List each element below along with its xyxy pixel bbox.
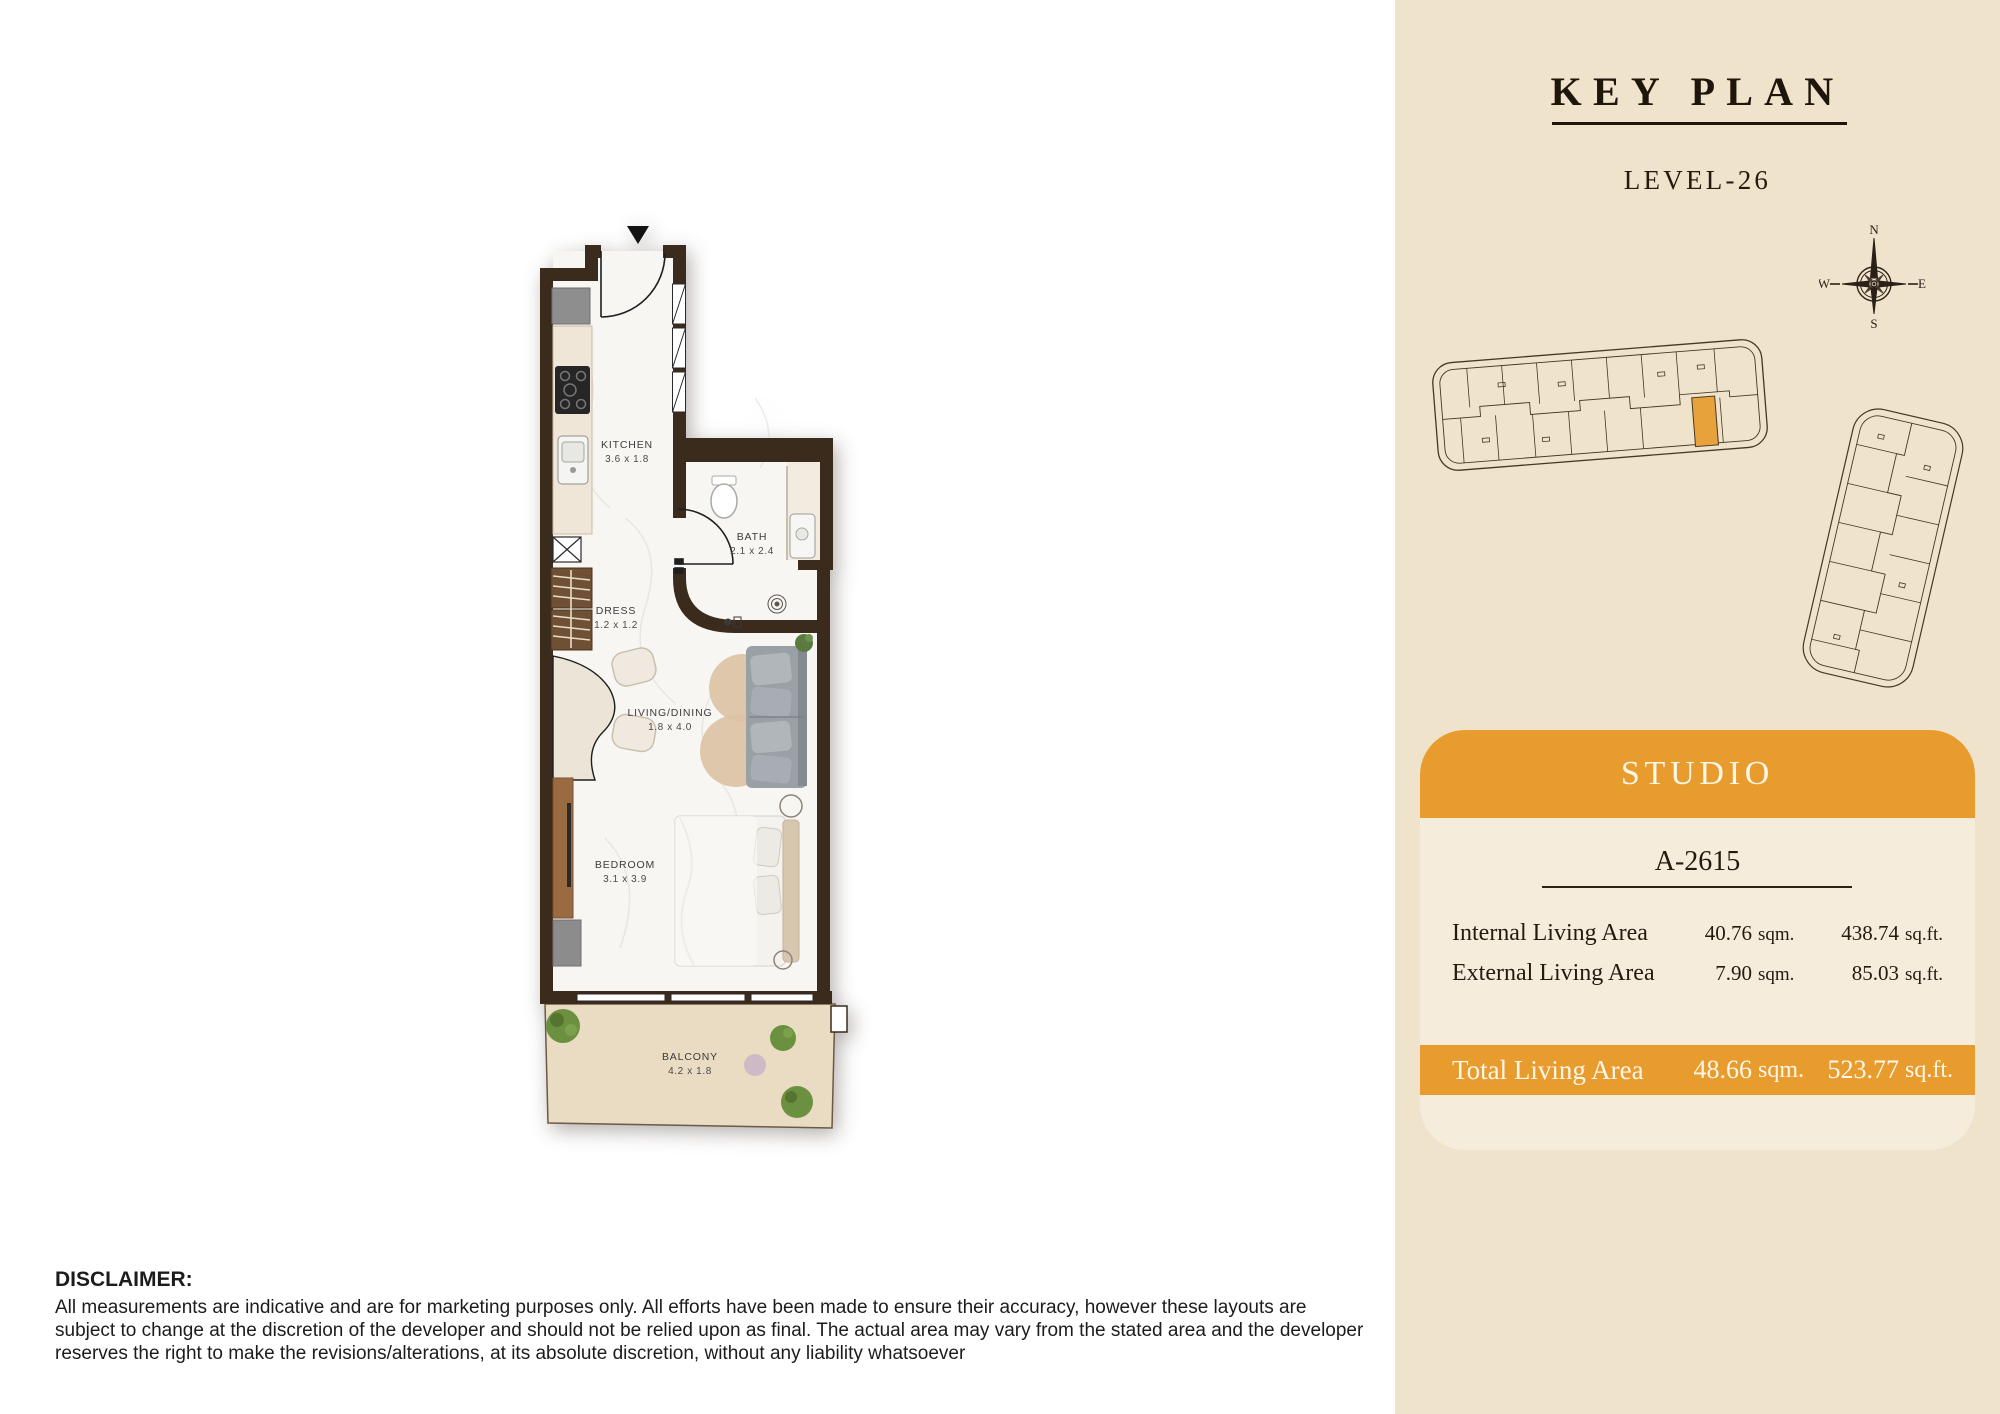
external-area-sqm-unit: sqm. — [1752, 964, 1804, 986]
key-plan-unit-highlight — [1692, 396, 1719, 447]
stove-icon — [555, 366, 590, 414]
unit-number-underline — [1542, 886, 1852, 888]
kitchen-counter — [553, 326, 592, 534]
room-label-living: LIVING/DINING — [627, 707, 712, 719]
balcony-column — [831, 1006, 847, 1032]
level-label: LEVEL-26 — [1395, 165, 2000, 196]
external-area-sqft-unit: sq.ft. — [1899, 964, 1943, 986]
kitchen-shaft — [552, 288, 590, 324]
key-plan-underline — [1552, 122, 1847, 125]
room-label-kitchen: KITCHEN — [601, 439, 653, 451]
key-plan-building-b — [1798, 404, 1968, 692]
total-area-row: Total Living Area 48.66 sqm. 523.77 sq.f… — [1420, 1045, 1975, 1095]
unit-card-header: STUDIO — [1420, 730, 1975, 818]
disclaimer-body: All measurements are indicative and are … — [55, 1296, 1365, 1366]
unit-type-label: STUDIO — [1621, 755, 1774, 793]
internal-area-sqft-unit: sq.ft. — [1899, 924, 1943, 946]
key-plan-buildings — [1405, 300, 1995, 700]
page: KITCHEN 3.6 x 1.8 BATH 2.1 x 2.4 DRESS 1… — [0, 0, 2000, 1414]
area-row-external: External Living Area 7.90 sqm. 85.03 sq.… — [1420, 960, 1975, 987]
area-rows: Internal Living Area 40.76 sqm. 438.74 s… — [1420, 920, 1975, 1000]
room-label-balcony: BALCONY — [662, 1051, 718, 1063]
tv-icon — [567, 803, 571, 887]
bath-sink-icon — [790, 514, 815, 558]
shaft-icon — [553, 537, 581, 562]
closet-icon — [673, 284, 686, 412]
room-dim-dress: 1.2 x 1.2 — [594, 620, 638, 631]
external-area-label: External Living Area — [1452, 960, 1677, 987]
key-plan-panel: KEY PLAN LEVEL-26 N — [1395, 0, 2000, 1414]
sofa-icon — [746, 646, 807, 788]
key-plan-building-a — [1431, 338, 1768, 472]
internal-area-label: Internal Living Area — [1452, 920, 1677, 947]
floor-plan: KITCHEN 3.6 x 1.8 BATH 2.1 x 2.4 DRESS 1… — [515, 218, 885, 1158]
compass-w: W — [1819, 276, 1831, 291]
room-dim-kitchen: 3.6 x 1.8 — [605, 454, 649, 465]
room-label-dress: DRESS — [596, 605, 636, 617]
entry-arrow-icon — [627, 226, 649, 244]
room-dim-bath: 2.1 x 2.4 — [730, 546, 774, 557]
bed-icon — [675, 816, 799, 966]
room-label-bedroom: BEDROOM — [595, 859, 655, 871]
compass-n: N — [1869, 222, 1879, 237]
total-area-sqft: 523.77 — [1804, 1055, 1899, 1085]
unit-number: A-2615 — [1420, 846, 1975, 878]
room-dim-balcony: 4.2 x 1.8 — [668, 1066, 712, 1077]
total-area-label: Total Living Area — [1452, 1055, 1677, 1086]
room-dim-bedroom: 3.1 x 3.9 — [603, 874, 647, 885]
sink-icon — [558, 436, 588, 484]
external-area-sqft: 85.03 — [1804, 961, 1899, 986]
room-label-bath: BATH — [737, 531, 768, 543]
shaft-box — [553, 920, 581, 966]
disclaimer-heading: DISCLAIMER: — [55, 1268, 1365, 1292]
room-dim-living: 1.8 x 4.0 — [648, 722, 692, 733]
internal-area-sqft: 438.74 — [1804, 921, 1899, 946]
internal-area-sqm: 40.76 — [1677, 921, 1752, 946]
plant-icon — [795, 634, 813, 652]
area-row-internal: Internal Living Area 40.76 sqm. 438.74 s… — [1420, 920, 1975, 947]
external-area-sqm: 7.90 — [1677, 961, 1752, 986]
compass-e: E — [1918, 276, 1926, 291]
internal-area-sqm-unit: sqm. — [1752, 924, 1804, 946]
toilet-icon — [711, 476, 737, 518]
total-area-sqft-unit: sq.ft. — [1899, 1057, 1943, 1084]
unit-card: STUDIO A-2615 Internal Living Area 40.76… — [1420, 730, 1975, 1150]
disclaimer: DISCLAIMER: All measurements are indicat… — [55, 1268, 1365, 1366]
balcony-window — [577, 994, 813, 1001]
total-area-sqm: 48.66 — [1677, 1055, 1752, 1085]
key-plan-title: KEY PLAN — [1395, 68, 2000, 115]
total-area-sqm-unit: sqm. — [1752, 1057, 1804, 1084]
